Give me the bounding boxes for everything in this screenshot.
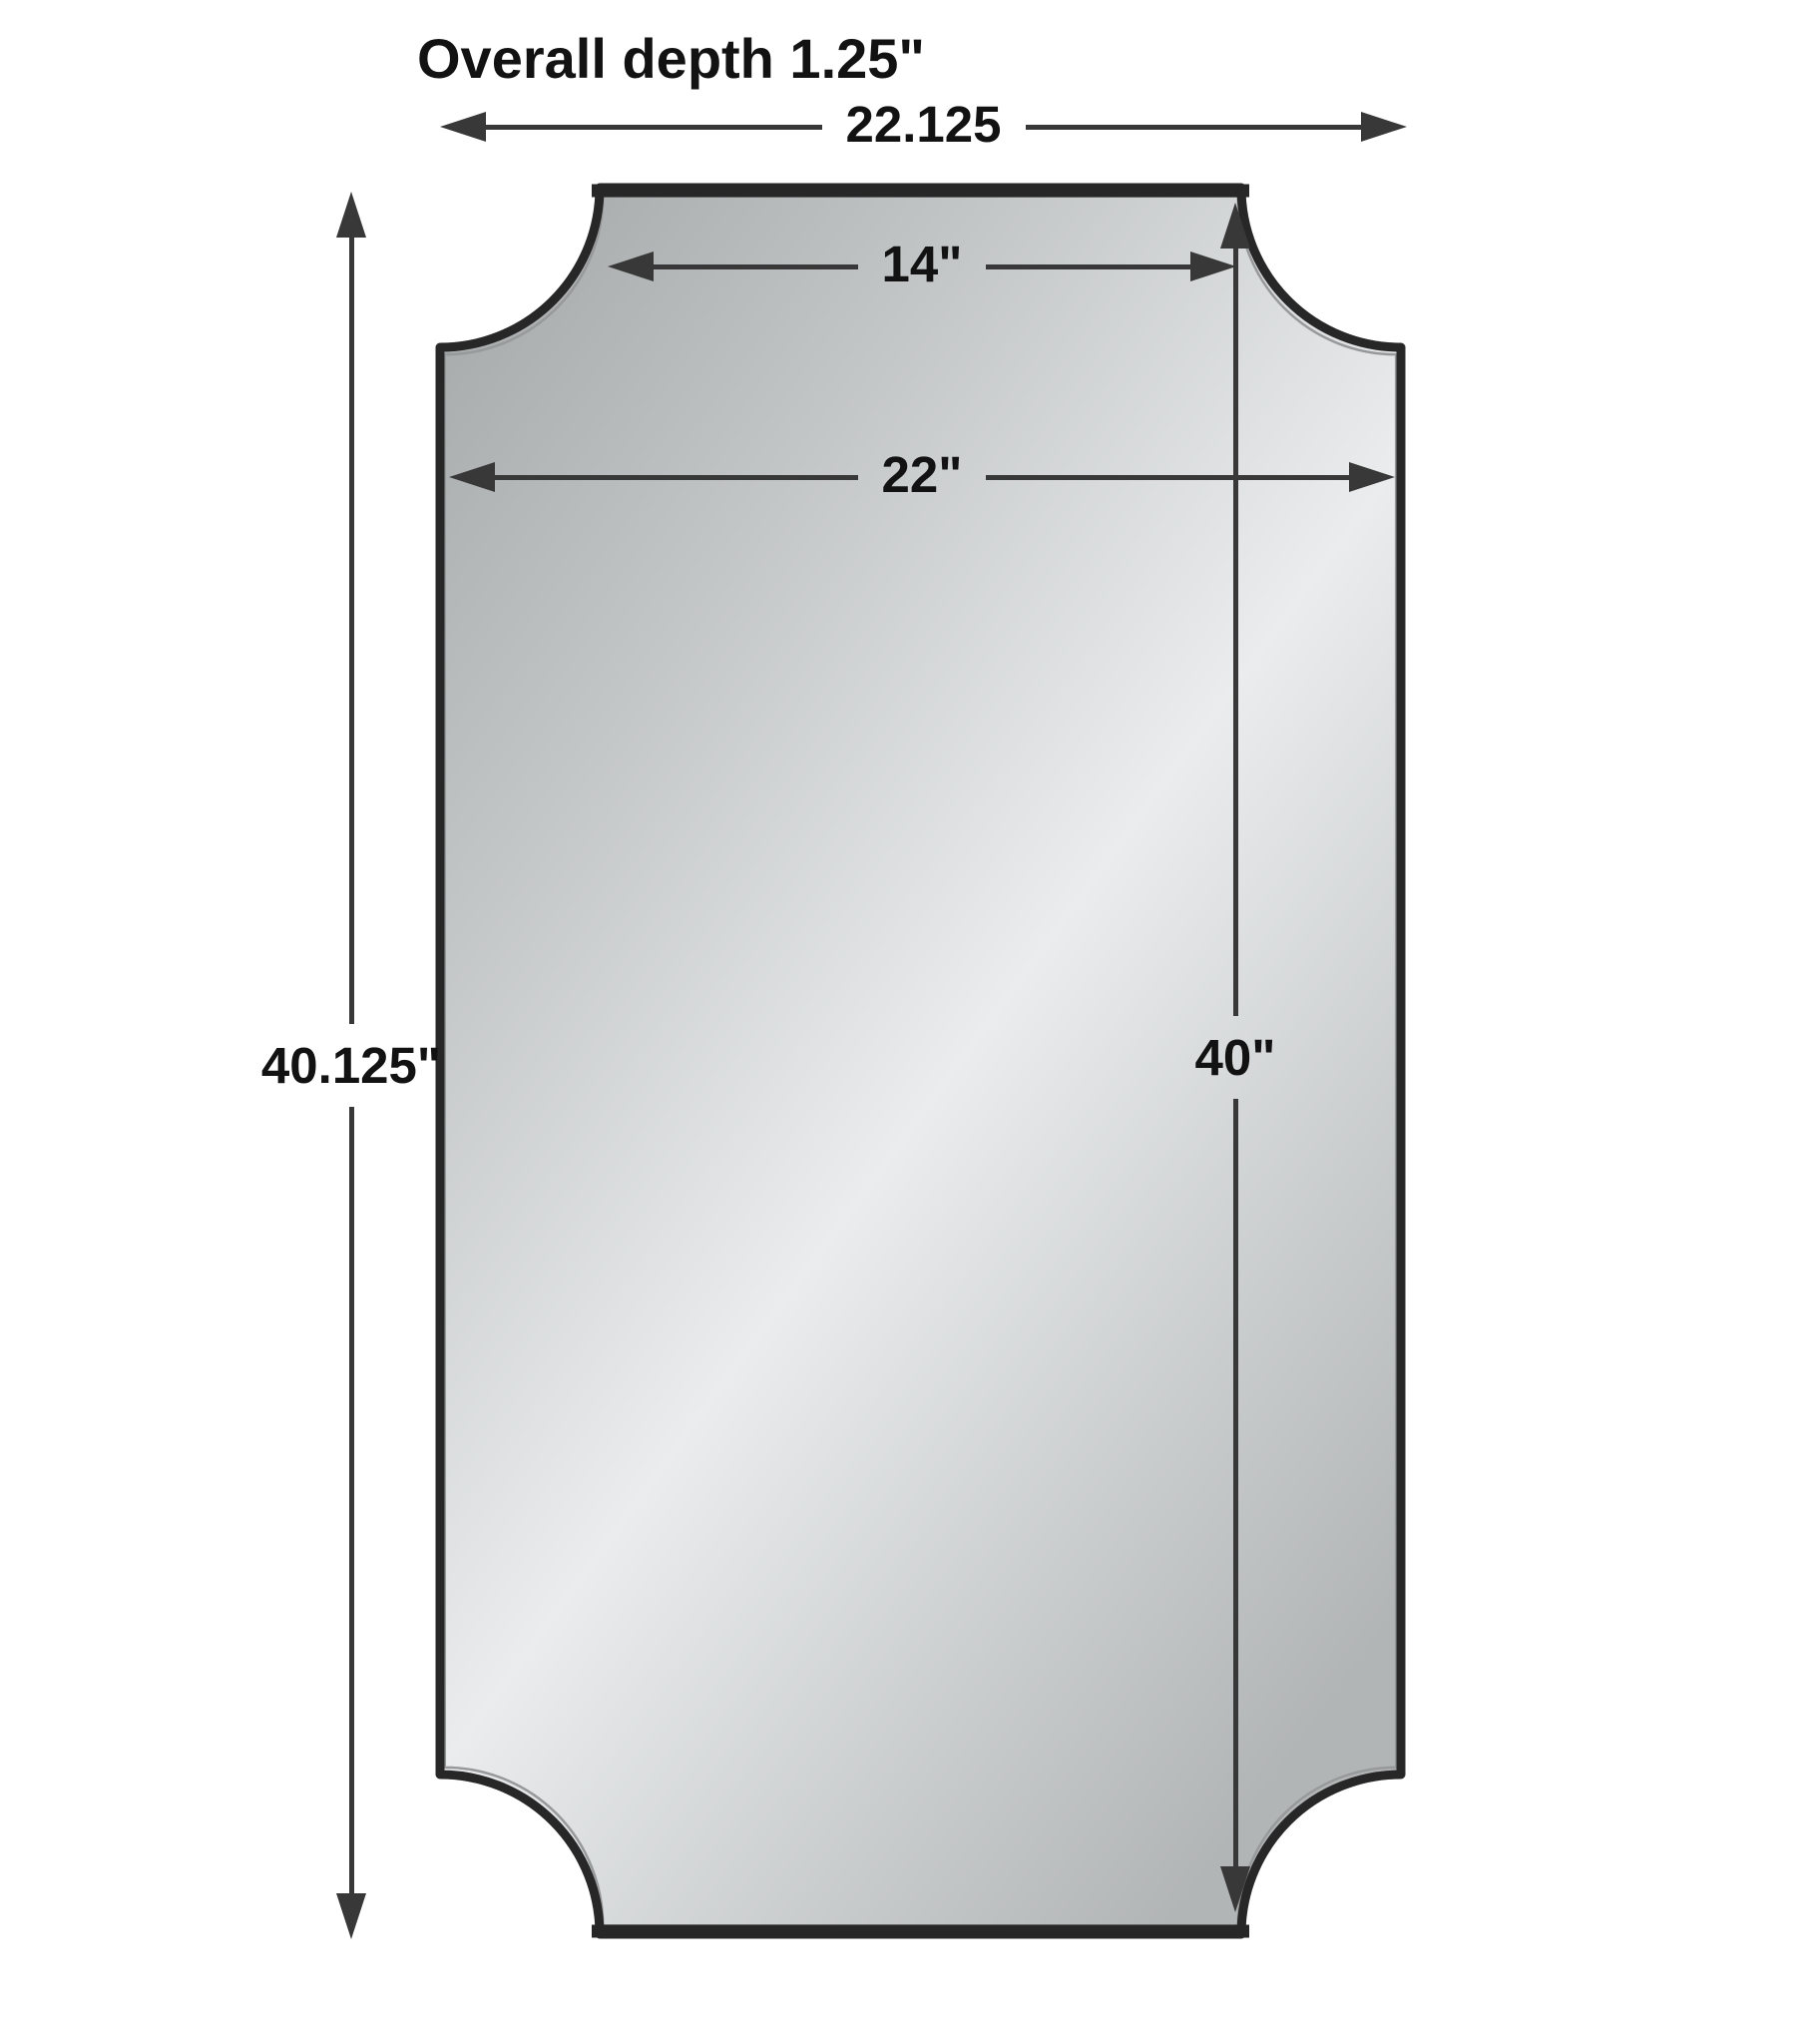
dim-overall-width: 22.125 — [440, 109, 1407, 145]
dim-top-edge-width: 14" — [608, 249, 1236, 284]
dim-inner-height: 40" — [1145, 203, 1325, 1912]
arrow-up-icon — [1220, 203, 1250, 249]
overall-width-label: 22.125 — [846, 99, 1002, 150]
overall-depth-title: Overall depth 1.25" — [417, 26, 925, 91]
arrow-right-icon — [1349, 462, 1395, 492]
dimension-line — [486, 125, 822, 130]
arrow-left-icon — [608, 252, 654, 281]
dimension-line — [654, 264, 858, 269]
inner-width-label: 22" — [882, 449, 963, 500]
dimension-line — [1233, 1099, 1238, 1866]
dimension-line — [1026, 125, 1362, 130]
dimension-diagram-page: Overall depth 1.25" 22.125 — [0, 0, 1820, 2044]
top-edge-width-label: 14" — [882, 239, 963, 289]
arrow-left-icon — [440, 112, 486, 142]
inner-height-label: 40" — [1195, 1032, 1276, 1083]
arrow-up-icon — [336, 192, 366, 238]
dimension-line — [349, 238, 354, 1024]
dimension-line — [495, 475, 858, 480]
dim-overall-height: 40.125" — [261, 192, 441, 1939]
dimension-line — [1233, 249, 1238, 1016]
dimension-line — [349, 1107, 354, 1893]
overall-height-label: 40.125" — [261, 1040, 441, 1091]
arrow-down-icon — [1220, 1866, 1250, 1912]
arrow-right-icon — [1361, 112, 1407, 142]
arrow-left-icon — [449, 462, 495, 492]
arrow-down-icon — [336, 1893, 366, 1939]
